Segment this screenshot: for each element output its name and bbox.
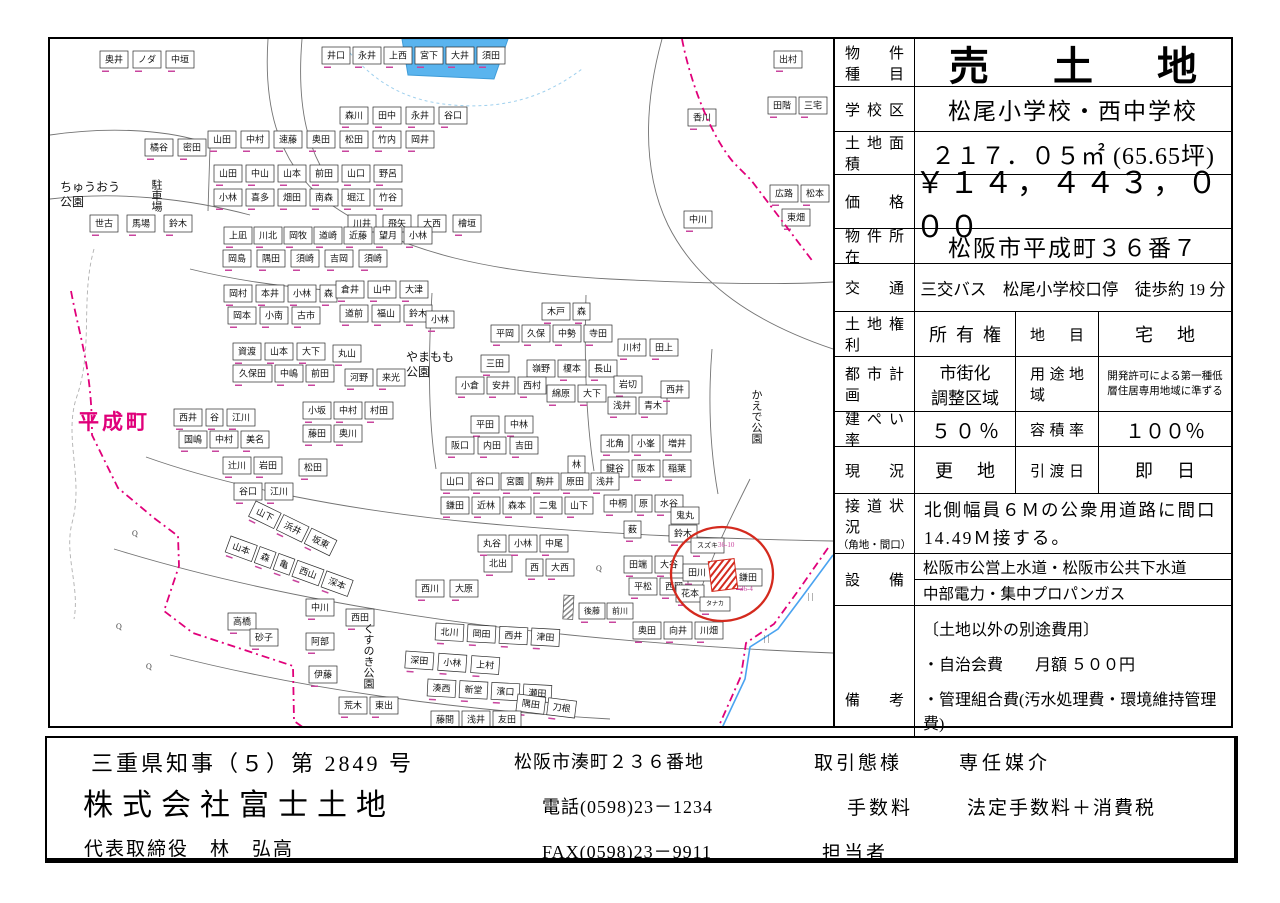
- svg-text:長山: 長山: [594, 364, 612, 374]
- svg-text:大谷: 大谷: [660, 559, 678, 570]
- svg-text:山本: 山本: [283, 168, 301, 179]
- svg-text:堀江: 堀江: [347, 193, 365, 203]
- map-parcel-row: 奥田向井川畑: [633, 622, 723, 643]
- city-map: 奥井ノダ中垣橘谷密田世古馬場鈴木井口永井上西宮下大井須田森川田中永井谷口香川川井…: [50, 39, 833, 726]
- svg-text:西村: 西村: [523, 380, 541, 391]
- map-parcel-row: 辻川岩田: [223, 457, 282, 478]
- svg-text:林: 林: [572, 459, 581, 470]
- svg-text:岡本: 岡本: [233, 310, 251, 321]
- coverage-label: 建ぺい率: [835, 412, 915, 446]
- handover-value: 即日: [1099, 447, 1231, 493]
- map-parcel-row: 上凪川北岡牧道崎近藤望月小林: [224, 227, 432, 248]
- far-value: １００％: [1099, 412, 1231, 446]
- svg-text:小林: 小林: [431, 314, 449, 325]
- svg-text:山本: 山本: [270, 346, 288, 357]
- svg-text:岩切: 岩切: [619, 379, 637, 390]
- svg-text:本井: 本井: [261, 288, 279, 299]
- svg-text:中村: 中村: [246, 134, 264, 145]
- map-parcel-row: 小林喜多畑田南森堀江竹谷: [214, 189, 402, 210]
- svg-text:須崎: 須崎: [296, 253, 314, 264]
- svg-text:大西: 大西: [551, 562, 569, 573]
- svg-text:須崎: 須崎: [364, 253, 382, 264]
- svg-text:松田: 松田: [304, 462, 322, 473]
- svg-text:岡村: 岡村: [229, 288, 247, 299]
- svg-text:香川: 香川: [693, 113, 711, 123]
- status-label: 現況: [835, 447, 915, 493]
- svg-text:道崎: 道崎: [319, 230, 337, 241]
- svg-text:山田: 山田: [213, 135, 231, 145]
- svg-text:南森: 南森: [315, 192, 333, 203]
- utilities-line2: 中部電力・集中プロパンガス: [915, 579, 1231, 605]
- svg-text:西: 西: [530, 563, 539, 573]
- map-parcel-row: 北出: [484, 555, 512, 576]
- row-transport: 交通 三交バス 松尾小学校口停 徒歩約 19 分: [835, 263, 1231, 311]
- map-parcel-row: 伊藤: [309, 666, 337, 687]
- svg-text:中村: 中村: [339, 405, 357, 416]
- svg-text:上西: 上西: [389, 51, 407, 61]
- svg-text:岩田: 岩田: [259, 460, 277, 471]
- svg-text:中嶋: 中嶋: [280, 368, 298, 379]
- map-labels: 平成町ちゅうおう公園やまもも公園かえで公園くすのき公園駐車場QQQQ| || |…: [60, 178, 813, 690]
- svg-text:辻川: 辻川: [228, 460, 246, 471]
- label-yamamomo-park: やまもも公園: [406, 350, 454, 379]
- svg-text:隅田: 隅田: [262, 254, 280, 264]
- price-value: ￥１４，４４３，０００: [915, 175, 1231, 228]
- row-property-type: 物件 種目 売土地: [835, 39, 1231, 86]
- map-parcel-row: 森川田中永井谷口: [340, 107, 467, 128]
- svg-text:二鬼: 二鬼: [539, 500, 557, 511]
- city-planning-label: 都市計画: [835, 357, 915, 411]
- map-parcel-row: 隅田刀根: [515, 694, 576, 722]
- map-parcel-row: 岩切: [614, 376, 642, 397]
- svg-text:谷口: 谷口: [239, 487, 257, 497]
- deal-type-label: 取引態様: [814, 748, 902, 775]
- map-parcel-row: 出村: [774, 51, 802, 72]
- svg-text:三宅: 三宅: [804, 100, 822, 111]
- map-parcel-row: 三田: [481, 355, 509, 376]
- svg-text:井口: 井口: [327, 50, 345, 61]
- svg-text:来光: 来光: [382, 372, 400, 383]
- school-value: 松尾小学校・西中学校: [915, 87, 1231, 131]
- svg-text:湊西: 湊西: [432, 682, 451, 694]
- svg-text:平岡: 平岡: [496, 329, 514, 339]
- svg-text:山中: 山中: [373, 284, 391, 295]
- svg-text:上村: 上村: [476, 658, 495, 670]
- handover-label: 引渡日: [1015, 447, 1099, 493]
- svg-text:タナカ: タナカ: [706, 600, 724, 608]
- svg-text:向井: 向井: [669, 625, 687, 636]
- svg-text:野呂: 野呂: [379, 169, 397, 179]
- svg-text:丸山: 丸山: [338, 348, 356, 359]
- remarks-heading: 〔土地以外の別途費用〕: [923, 616, 1225, 640]
- zoning-value: 開発許可による第一種低層住居専用地域に準ずる: [1099, 357, 1231, 411]
- map-parcel-row: 奥井ノダ中垣: [100, 51, 194, 72]
- svg-text:中川: 中川: [311, 602, 329, 613]
- map-parcel-row: 西井谷江川: [174, 409, 255, 430]
- map-parcel-row: 岡島隅田須崎吉岡須崎: [223, 250, 387, 271]
- svg-text:西井: 西井: [179, 412, 197, 423]
- transport-label: 交通: [835, 264, 915, 311]
- svg-text:濱口: 濱口: [496, 685, 515, 697]
- svg-text:谷口: 谷口: [444, 111, 462, 121]
- map-parcel-row: 山口谷口宮園駒井原田浅井: [441, 473, 619, 494]
- svg-text:須田: 須田: [482, 51, 500, 61]
- map-parcel-row: 阪口内田吉田: [446, 437, 538, 458]
- svg-text:山田: 山田: [219, 169, 237, 179]
- map-parcel-row: 後藤前川: [579, 603, 633, 623]
- svg-text:田川: 田川: [688, 568, 706, 578]
- svg-text:荒木: 荒木: [344, 700, 362, 711]
- company-fax: FAX(0598)23－9911: [542, 838, 712, 864]
- svg-text:松本: 松本: [806, 188, 824, 199]
- svg-text:山口: 山口: [347, 169, 365, 179]
- svg-text:出村: 出村: [779, 54, 797, 65]
- svg-text:大井: 大井: [451, 50, 469, 61]
- license-number: 三重県知事（５）第 2849 号: [91, 746, 414, 778]
- svg-text:永井: 永井: [411, 110, 429, 121]
- far-label: 容積率: [1015, 412, 1099, 446]
- map-parcel-row: 小坂中村村田: [303, 402, 393, 423]
- svg-text:砂子: 砂子: [255, 632, 273, 643]
- svg-text:吉岡: 吉岡: [330, 254, 348, 264]
- svg-text:原田: 原田: [566, 477, 584, 487]
- svg-text:田階: 田階: [773, 101, 791, 111]
- svg-text:中林: 中林: [510, 419, 528, 430]
- svg-text:小林: 小林: [409, 230, 427, 241]
- svg-text:西川: 西川: [421, 584, 439, 594]
- svg-text:鍵谷: 鍵谷: [606, 463, 624, 474]
- property-type-label: 物件 種目: [835, 39, 915, 86]
- price-label: 価格: [835, 175, 915, 228]
- svg-text:駒井: 駒井: [536, 476, 554, 487]
- svg-text:竹谷: 竹谷: [379, 192, 397, 203]
- row-price: 価格 ￥１４，４４３，０００: [835, 174, 1231, 228]
- svg-text:小林: 小林: [219, 192, 237, 203]
- land-area-label: 土地面積: [835, 132, 915, 174]
- row-coverage: 建ぺい率 ５０％ 容積率 １００％: [835, 411, 1231, 446]
- svg-text:谷: 谷: [210, 413, 219, 423]
- svg-text:西田: 西田: [351, 613, 369, 623]
- svg-text:小峯: 小峯: [637, 439, 655, 449]
- svg-text:稲葉: 稲葉: [668, 463, 686, 474]
- svg-text:倉井: 倉井: [341, 284, 359, 295]
- svg-text:宮園: 宮園: [506, 476, 524, 487]
- agency-info-box: 三重県知事（５）第 2849 号 株式会社富士土地 代表取締役 林 弘高 松阪市…: [45, 736, 1238, 863]
- utilities-line1: 松阪市公営上水道・松阪市公共下水道: [915, 554, 1231, 579]
- svg-text:奥井: 奥井: [105, 54, 123, 65]
- map-parcel-row: 荒木東出: [339, 697, 398, 718]
- svg-text:スズキ: スズキ: [697, 541, 718, 550]
- map-parcel-row: 世古馬場鈴木: [90, 215, 192, 236]
- row-city-planning: 都市計画 市街化 調整区域 用途地域 開発許可による第一種低層住居専用地域に準ず…: [835, 356, 1231, 411]
- map-parcel-row: 西大西: [526, 559, 574, 580]
- svg-text:刀根: 刀根: [552, 701, 571, 714]
- svg-text:田中: 田中: [378, 110, 396, 121]
- map-parcel-row: 岡村本井小林森: [224, 285, 337, 306]
- svg-text:道前: 道前: [345, 308, 363, 319]
- parcel-blocks: 奥井ノダ中垣橘谷密田世古馬場鈴木井口永井上西宮下大井須田森川田中永井谷口香川川井…: [90, 47, 829, 726]
- property-table: 物件 種目 売土地 学校区 松尾小学校・西中学校 土地面積 ２１７．０５㎡ (6…: [833, 39, 1231, 726]
- svg-text:小倉: 小倉: [461, 380, 479, 391]
- svg-text:綿原: 綿原: [552, 388, 570, 399]
- svg-text:村田: 村田: [370, 405, 388, 416]
- svg-text:平松: 平松: [634, 581, 652, 592]
- deal-type-value: 専任媒介: [959, 748, 1051, 775]
- svg-text:増井: 増井: [668, 438, 686, 449]
- company-phone: 電話(0598)23－1234: [542, 793, 713, 819]
- svg-text:大下: 大下: [302, 346, 320, 357]
- map-parcel-row: 倉井山中大津: [336, 281, 428, 302]
- svg-text:喜多: 喜多: [251, 192, 269, 203]
- lot-number: 36-10: [718, 541, 735, 549]
- agent-label: 担当者: [822, 838, 888, 865]
- map-parcel-row: 平田中林: [471, 416, 533, 437]
- remarks-item: ・自治会費 月額 ５００円: [923, 651, 1225, 675]
- svg-text:阪本: 阪本: [637, 463, 655, 474]
- svg-text:鬼丸: 鬼丸: [676, 510, 694, 521]
- utilities-values: 松阪市公営上水道・松阪市公共下水道 中部電力・集中プロパンガス: [915, 554, 1231, 605]
- svg-text:西井: 西井: [666, 384, 684, 395]
- svg-text:竹内: 竹内: [378, 134, 396, 145]
- svg-text:世古: 世古: [95, 218, 113, 229]
- svg-text:小林: 小林: [443, 656, 462, 668]
- svg-text:江川: 江川: [270, 487, 288, 497]
- svg-text:後藤: 後藤: [584, 606, 600, 616]
- map-parcel-row: 小倉安井西村: [456, 377, 546, 398]
- svg-text:畑田: 畑田: [283, 192, 301, 203]
- map-parcel-row: 砂子: [250, 629, 278, 650]
- svg-text:国嶋: 国嶋: [184, 434, 202, 445]
- svg-text:北出: 北出: [489, 558, 507, 569]
- svg-text:大津: 大津: [405, 284, 423, 295]
- company-address: 松阪市湊町２３６番地: [514, 748, 704, 774]
- svg-text:友田: 友田: [498, 714, 516, 725]
- svg-text:浅井: 浅井: [613, 400, 631, 411]
- svg-text:花本: 花本: [681, 588, 699, 599]
- zoning-label: 用途地域: [1015, 357, 1099, 411]
- svg-text:安井: 安井: [492, 380, 510, 391]
- svg-text:美名: 美名: [246, 434, 264, 445]
- map-parcel-row: 広路松本: [770, 185, 829, 206]
- svg-text:三田: 三田: [486, 359, 504, 369]
- svg-text:高橋: 高橋: [233, 616, 251, 627]
- row-school: 学校区 松尾小学校・西中学校: [835, 86, 1231, 131]
- svg-text:奥田: 奥田: [638, 625, 656, 636]
- map-parcel-row: 橘谷密田: [145, 139, 206, 160]
- svg-text:阪口: 阪口: [451, 441, 469, 451]
- svg-text:前川: 前川: [612, 606, 628, 616]
- fee-label: 手数料: [847, 793, 913, 820]
- svg-text:近藤: 近藤: [349, 230, 367, 241]
- map-parcel-row: 鎌田近林森本二鬼山下: [441, 497, 593, 518]
- svg-text:鈴木: 鈴木: [409, 308, 427, 319]
- utilities-label: 設備: [835, 554, 915, 605]
- svg-text:中垣: 中垣: [171, 54, 189, 65]
- map-symbol: Q: [146, 662, 152, 671]
- svg-text:東畑: 東畑: [787, 212, 805, 223]
- svg-text:鈴木: 鈴木: [169, 218, 187, 229]
- svg-text:浅井: 浅井: [596, 476, 614, 487]
- svg-text:新堂: 新堂: [464, 683, 483, 695]
- svg-text:丸谷: 丸谷: [483, 538, 501, 549]
- main-box: 奥井ノダ中垣橘谷密田世古馬場鈴木井口永井上西宮下大井須田森川田中永井谷口香川川井…: [48, 37, 1233, 728]
- svg-text:河野: 河野: [350, 372, 368, 383]
- map-parcel-row: 山田中山山本前田山口野呂: [214, 165, 402, 186]
- map-parcel-row: タナカ: [700, 597, 730, 615]
- svg-text:北角: 北角: [606, 438, 624, 449]
- svg-text:阿部: 阿部: [311, 636, 329, 647]
- svg-text:青木: 青木: [644, 400, 662, 411]
- svg-text:望月: 望月: [379, 230, 397, 241]
- property-parcel-hatched: [708, 559, 737, 592]
- svg-text:前田: 前田: [315, 168, 333, 179]
- svg-text:川畑: 川畑: [700, 625, 718, 636]
- svg-text:吉田: 吉田: [515, 441, 533, 451]
- svg-text:橘谷: 橘谷: [150, 143, 168, 153]
- road-value: 北側幅員６Ｍの公衆用道路に間口 14.49Ｍ接する。: [915, 494, 1231, 553]
- label-kusunoki-park: くすのき公園: [362, 623, 375, 690]
- svg-text:森: 森: [324, 288, 333, 299]
- svg-text:山下: 山下: [570, 501, 588, 511]
- svg-text:山口: 山口: [446, 477, 464, 487]
- svg-text:岡田: 岡田: [472, 628, 491, 639]
- map-parcel-row: 綿原大下: [547, 385, 606, 406]
- svg-text:藤田: 藤田: [308, 428, 326, 439]
- svg-text:内田: 内田: [483, 440, 501, 451]
- map-parcel-row: 浅井青木: [608, 397, 667, 418]
- svg-text:谷口: 谷口: [476, 477, 494, 487]
- svg-text:中山: 中山: [251, 168, 269, 179]
- row-status: 現況 更地 引渡日 即日: [835, 446, 1231, 493]
- lot-number: 36-4: [740, 585, 753, 593]
- land-category-label: 地目: [1015, 312, 1099, 356]
- svg-text:奥田: 奥田: [312, 134, 330, 145]
- map-parcel-row: 中川: [306, 599, 334, 620]
- svg-text:鎌田: 鎌田: [739, 572, 757, 583]
- map-parcel-row: 藤田奥川: [303, 425, 362, 446]
- row-utilities: 設備 松阪市公営上水道・松阪市公共下水道 中部電力・集中プロパンガス: [835, 553, 1231, 605]
- label-parking: 駐車場: [150, 178, 163, 213]
- svg-text:檜垣: 檜垣: [458, 218, 476, 229]
- map-symbol: Q: [596, 564, 602, 573]
- svg-text:鎌田: 鎌田: [446, 500, 464, 511]
- svg-text:伊藤: 伊藤: [314, 669, 332, 680]
- location-value: 松阪市平成町３６番７: [915, 229, 1231, 263]
- svg-text:中桐: 中桐: [609, 498, 627, 509]
- status-value: 更地: [915, 447, 1015, 493]
- svg-text:岡島: 岡島: [228, 253, 246, 264]
- row-road: 接道状況 （角地・間口） 北側幅員６Ｍの公衆用道路に間口 14.49Ｍ接する。: [835, 493, 1231, 553]
- svg-text:近林: 近林: [477, 500, 495, 511]
- label-kaede-park: かえで公園: [750, 389, 763, 445]
- representative-name: 代表取締役 林 弘高: [84, 834, 294, 861]
- svg-text:広路: 広路: [775, 188, 793, 199]
- label-chuo-park: ちゅうおう公園: [60, 180, 120, 209]
- svg-text:北川: 北川: [440, 627, 459, 638]
- svg-text:松田: 松田: [345, 134, 363, 145]
- map-symbol: Q: [132, 529, 138, 538]
- map-parcel-row: 薮: [624, 521, 641, 542]
- road-label: 接道状況 （角地・間口）: [835, 494, 915, 553]
- svg-text:上凪: 上凪: [229, 231, 247, 241]
- svg-text:古市: 古市: [297, 310, 315, 321]
- map-parcel-row: 北角小峯増井: [601, 435, 691, 456]
- map-parcel-row: 丸山: [333, 345, 361, 366]
- svg-text:資渡: 資渡: [238, 346, 256, 357]
- svg-text:小林: 小林: [514, 538, 532, 549]
- map-parcel-row: 岡本小南古市: [228, 307, 320, 328]
- svg-text:奥川: 奥川: [339, 428, 357, 439]
- map-symbol: | |: [808, 592, 813, 601]
- map-parcel-row: 河野来光: [345, 369, 405, 390]
- svg-text:寺田: 寺田: [589, 329, 607, 339]
- map-parcel-row: 山田中村速藤奥田松田竹内岡井: [208, 131, 434, 152]
- svg-text:前田: 前田: [311, 368, 329, 379]
- map-parcel-row: 阿部: [306, 633, 334, 654]
- svg-text:原: 原: [639, 499, 648, 509]
- map-parcel-row: 中川: [684, 211, 712, 232]
- row-location: 物件所在 松阪市平成町３６番７: [835, 228, 1231, 263]
- svg-text:津田: 津田: [536, 632, 555, 643]
- svg-text:川村: 川村: [623, 342, 641, 353]
- map-parcel-row: 平岡久保中勢寺田: [491, 325, 612, 346]
- svg-text:小林: 小林: [293, 288, 311, 299]
- land-rights-label: 土地権利: [835, 312, 915, 356]
- svg-text:田上: 田上: [655, 343, 673, 353]
- map-parcel-row: 道前福山鈴木: [340, 305, 432, 326]
- svg-text:永井: 永井: [358, 50, 376, 61]
- svg-text:藤間: 藤間: [436, 714, 454, 725]
- map-parcel-row: 西川大原: [416, 580, 478, 601]
- svg-text:江川: 江川: [232, 413, 250, 423]
- svg-text:久保田: 久保田: [239, 368, 266, 379]
- svg-text:小坂: 小坂: [308, 406, 326, 416]
- map-symbol: | |: [764, 634, 769, 643]
- city-map-area: 奥井ノダ中垣橘谷密田世古馬場鈴木井口永井上西宮下大井須田森川田中永井谷口香川川井…: [50, 39, 833, 726]
- map-symbol: Q: [116, 622, 122, 631]
- svg-text:田端: 田端: [629, 559, 647, 570]
- row-land-rights: 土地権利 所有権 地目 宅地: [835, 311, 1231, 356]
- svg-text:榎本: 榎本: [563, 363, 581, 374]
- svg-text:岡牧: 岡牧: [289, 230, 307, 241]
- remarks-item: ・管理組合費(汚水処理費・環境維持管理費): [923, 686, 1225, 734]
- school-label: 学校区: [835, 87, 915, 131]
- fee-value: 法定手数料＋消費税: [967, 793, 1156, 820]
- property-type-value: 売土地: [915, 39, 1231, 86]
- svg-text:宮下: 宮下: [420, 50, 438, 61]
- svg-text:木戸: 木戸: [547, 306, 565, 317]
- transport-value: 三交バス 松尾小学校口停 徒歩約 19 分: [915, 264, 1231, 311]
- svg-text:中川: 中川: [689, 214, 707, 225]
- map-parcel-row: 藤間浅井友田: [431, 711, 521, 726]
- coverage-value: ５０％: [915, 412, 1015, 446]
- svg-text:福山: 福山: [377, 308, 395, 319]
- land-rights-value: 所有権: [915, 312, 1015, 356]
- land-category-value: 宅地: [1099, 312, 1231, 356]
- svg-text:深田: 深田: [410, 655, 429, 666]
- map-parcel-row: 木戸森: [542, 303, 590, 324]
- map-parcel-row: 谷口江川: [234, 483, 293, 504]
- svg-text:中尾: 中尾: [545, 538, 563, 549]
- svg-text:森本: 森本: [508, 500, 526, 511]
- svg-text:速藤: 速藤: [279, 134, 297, 145]
- map-parcel-row: 資渡山本大下: [233, 343, 325, 364]
- svg-text:岡井: 岡井: [411, 134, 429, 145]
- gray-hatched-parcel: [563, 595, 574, 619]
- svg-text:中村: 中村: [215, 434, 233, 445]
- flyer-page: 奥井ノダ中垣橘谷密田世古馬場鈴木井口永井上西宮下大井須田森川田中永井谷口香川川井…: [0, 0, 1280, 903]
- svg-text:薮: 薮: [628, 524, 637, 535]
